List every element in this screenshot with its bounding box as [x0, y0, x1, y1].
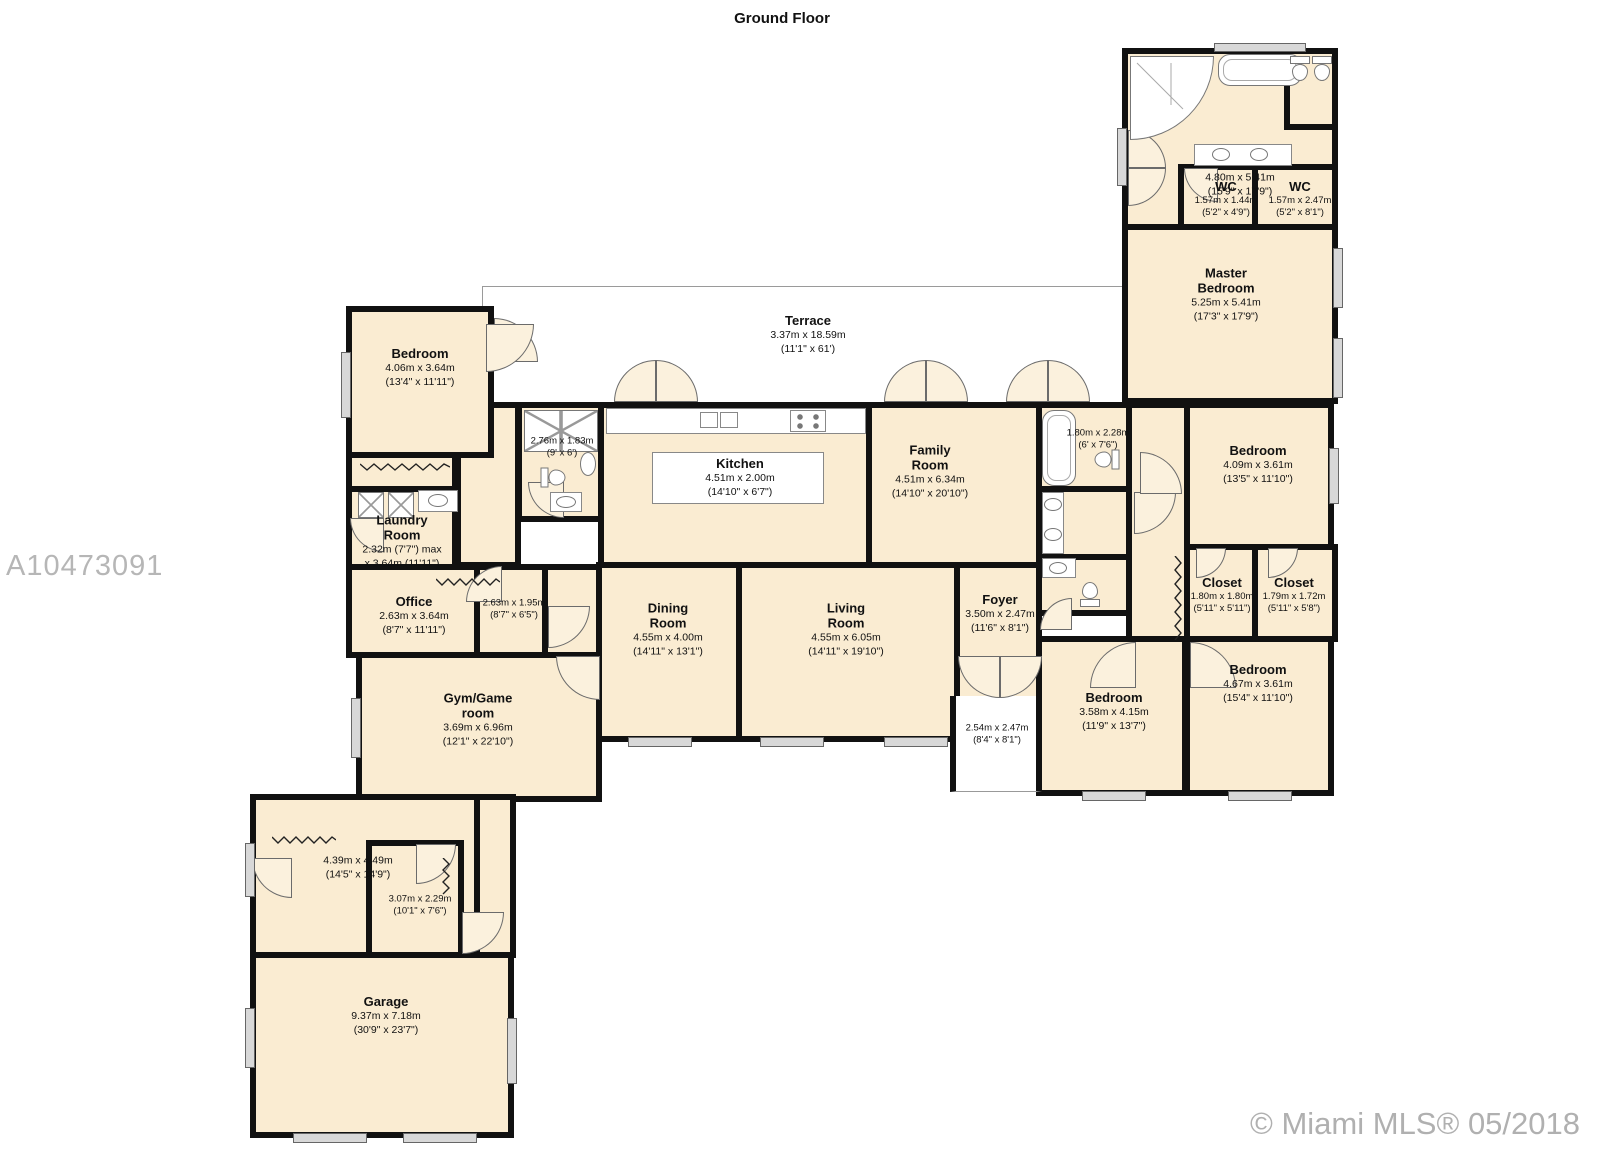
living-walls	[736, 562, 960, 742]
kitchen-sink-icon	[700, 412, 718, 428]
bathtub-icon	[1042, 410, 1076, 486]
toilet-icon	[1093, 450, 1120, 470]
master-bedroom-walls	[1122, 224, 1338, 404]
sink-icon	[580, 452, 596, 476]
closet-rail-zigzag	[438, 858, 454, 896]
sink-icon	[1044, 528, 1062, 541]
window	[1333, 338, 1343, 398]
toilet-icon	[541, 468, 568, 488]
sink-icon	[556, 496, 576, 508]
sink-icon	[428, 494, 448, 507]
window	[351, 698, 361, 758]
sink-icon	[1212, 148, 1230, 161]
window	[1117, 128, 1127, 186]
vanity-counter	[1194, 144, 1292, 166]
window	[884, 737, 948, 747]
bedroom-right-walls	[1184, 402, 1334, 550]
closet-rail-zigzag	[272, 832, 336, 846]
window	[341, 352, 351, 418]
closet-rail-zigzag	[360, 460, 450, 474]
stove-icon	[790, 410, 826, 432]
dryer-icon	[388, 492, 414, 518]
kitchen-island	[652, 452, 824, 504]
dining-walls	[596, 562, 742, 742]
window	[1214, 43, 1306, 52]
corner-shower-icon	[1130, 56, 1214, 140]
sink-icon	[1049, 562, 1067, 574]
toilet-icon	[1290, 56, 1310, 83]
window	[628, 737, 692, 747]
bedroom-top-left-walls	[346, 306, 494, 458]
window	[245, 1008, 255, 1068]
entry-porch-walls	[950, 696, 1042, 792]
wc-2-walls	[1252, 164, 1338, 230]
window	[1228, 791, 1292, 801]
garage-door	[293, 1133, 367, 1143]
garage-walls	[250, 952, 514, 1138]
kitchen-sink-icon	[720, 412, 738, 428]
closet-rail-zigzag	[1170, 556, 1186, 640]
garage-door	[403, 1133, 477, 1143]
sink-icon	[1250, 148, 1268, 161]
sink-icon	[1044, 498, 1062, 511]
page-title: Ground Floor	[734, 10, 830, 27]
toilet-icon	[1080, 580, 1100, 607]
window	[1333, 248, 1343, 308]
washer-icon	[358, 492, 384, 518]
floor-plan: Ground Floor A10473091 © Miami MLS® 05/2…	[0, 0, 1600, 1163]
shower-icon	[524, 410, 598, 452]
mls-watermark: A10473091	[6, 550, 163, 583]
window	[760, 737, 824, 747]
copyright-text: © Miami MLS® 05/2018	[1250, 1106, 1580, 1142]
bidet-icon	[1312, 56, 1332, 83]
closet-rail-zigzag	[436, 574, 500, 588]
window	[507, 1018, 517, 1084]
family-room-walls	[866, 402, 1042, 568]
window	[245, 843, 255, 897]
window	[1082, 791, 1146, 801]
window	[1329, 448, 1339, 504]
